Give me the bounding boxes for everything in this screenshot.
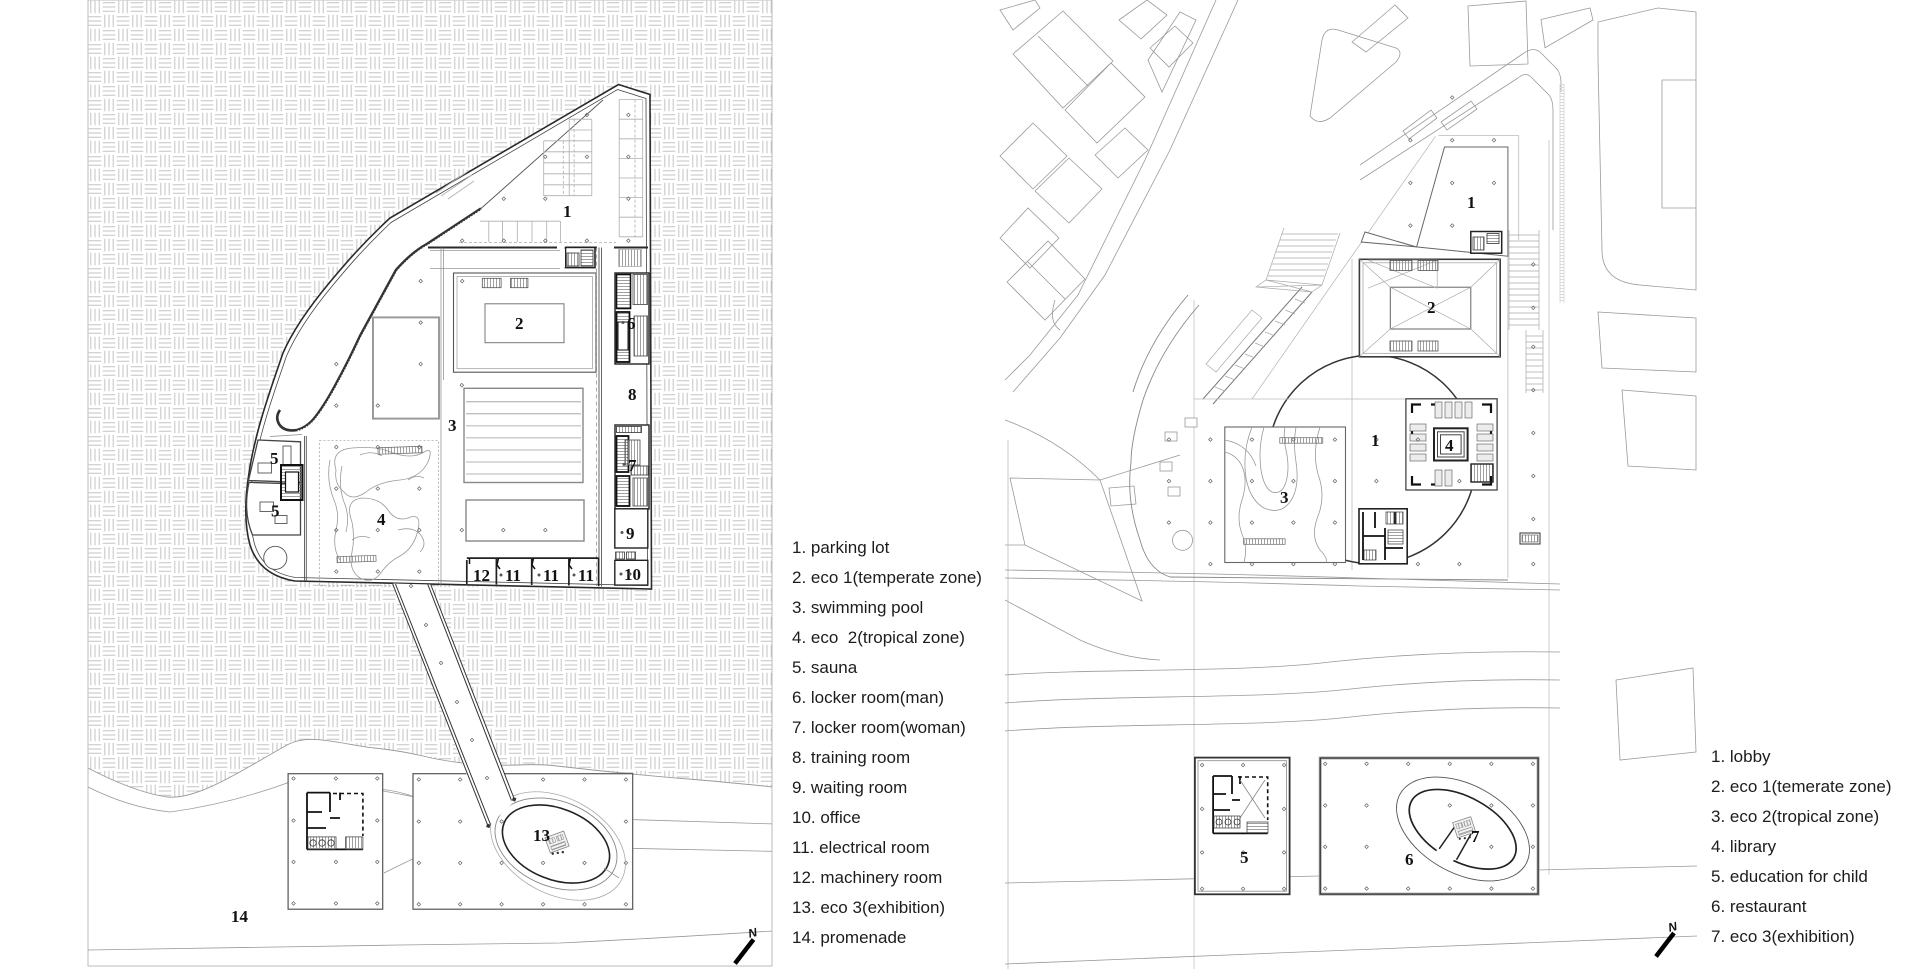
svg-text:2. eco 1(temerate zone): 2. eco 1(temerate zone) xyxy=(1711,777,1891,796)
svg-text:4: 4 xyxy=(1445,436,1454,455)
svg-text:5: 5 xyxy=(270,449,279,468)
svg-text:10: 10 xyxy=(624,565,641,584)
svg-text:12: 12 xyxy=(473,566,490,585)
svg-text:3. swimming pool: 3. swimming pool xyxy=(792,598,923,617)
svg-text:6. restaurant: 6. restaurant xyxy=(1711,897,1807,916)
svg-text:11: 11 xyxy=(578,566,594,585)
svg-text:1. lobby: 1. lobby xyxy=(1711,747,1771,766)
svg-text:3: 3 xyxy=(1280,488,1289,507)
svg-text:5. education for child: 5. education for child xyxy=(1711,867,1868,886)
svg-text:7: 7 xyxy=(628,456,637,475)
svg-text:10. office: 10. office xyxy=(792,808,861,827)
svg-text:2: 2 xyxy=(1427,298,1436,317)
svg-text:N: N xyxy=(1667,919,1679,935)
svg-text:6: 6 xyxy=(1405,850,1414,869)
svg-text:2: 2 xyxy=(515,314,524,333)
svg-text:4. eco 2(tropical zone): 4. eco 2(tropical zone) xyxy=(792,628,965,647)
svg-text:1. parking lot: 1. parking lot xyxy=(792,538,890,557)
svg-text:9: 9 xyxy=(626,524,635,543)
svg-text:1: 1 xyxy=(1371,431,1380,450)
svg-text:4. library: 4. library xyxy=(1711,837,1777,856)
svg-text:5. sauna: 5. sauna xyxy=(792,658,858,677)
svg-text:12. machinery room: 12. machinery room xyxy=(792,868,942,887)
svg-text:9. waiting room: 9. waiting room xyxy=(792,778,907,797)
svg-text:11: 11 xyxy=(505,566,521,585)
svg-text:11. electrical room: 11. electrical room xyxy=(792,838,930,857)
svg-text:14. promenade: 14. promenade xyxy=(792,928,906,947)
svg-text:7. locker room(woman): 7. locker room(woman) xyxy=(792,718,966,737)
svg-text:6: 6 xyxy=(627,314,636,333)
svg-text:11: 11 xyxy=(543,566,559,585)
svg-text:4: 4 xyxy=(377,510,386,529)
svg-text:8: 8 xyxy=(628,385,637,404)
svg-text:13. eco 3(exhibition): 13. eco 3(exhibition) xyxy=(792,898,945,917)
svg-text:3: 3 xyxy=(448,416,457,435)
svg-text:7: 7 xyxy=(1471,827,1480,846)
svg-text:8. training room: 8. training room xyxy=(792,748,910,767)
svg-text:1: 1 xyxy=(563,202,572,221)
svg-text:13: 13 xyxy=(533,826,550,845)
svg-text:7. eco 3(exhibition): 7. eco 3(exhibition) xyxy=(1711,927,1855,946)
svg-text:1: 1 xyxy=(1467,193,1476,212)
svg-text:6. locker room(man): 6. locker room(man) xyxy=(792,688,944,707)
svg-text:5: 5 xyxy=(271,502,280,521)
svg-text:2. eco 1(temperate zone): 2. eco 1(temperate zone) xyxy=(792,568,982,587)
svg-text:3. eco 2(tropical zone): 3. eco 2(tropical zone) xyxy=(1711,807,1879,826)
svg-text:14: 14 xyxy=(231,907,249,926)
svg-text:5: 5 xyxy=(1240,848,1249,867)
svg-text:N: N xyxy=(747,925,759,941)
